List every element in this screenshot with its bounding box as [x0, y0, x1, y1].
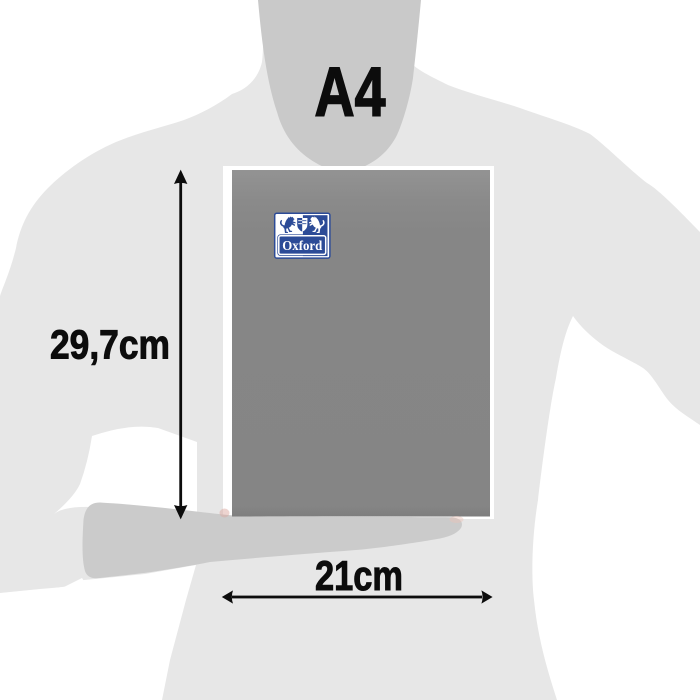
svg-text:29,7cm: 29,7cm	[50, 322, 170, 368]
svg-text:A4: A4	[315, 53, 386, 131]
svg-text:21cm: 21cm	[315, 552, 403, 599]
svg-text:Oxford: Oxford	[282, 238, 322, 253]
